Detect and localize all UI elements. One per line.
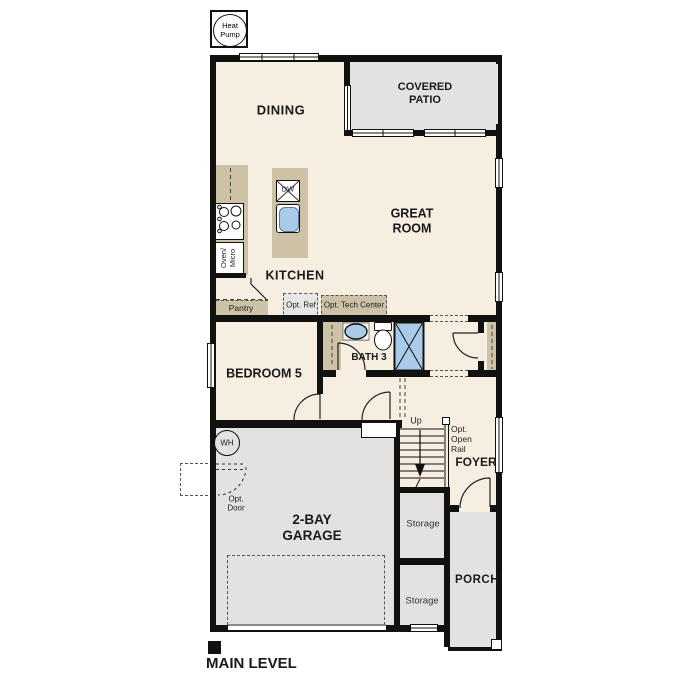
bath-door-opening [336,370,366,377]
window [352,129,414,137]
front-door-opening [459,505,490,512]
garage-door-clearance-dashed [227,555,385,625]
porch-step [491,639,502,650]
window [424,129,486,137]
great-room-label: GREAT ROOM [380,206,444,236]
heat-pump-badge: Heat Pump [210,10,248,48]
storage-lower-label: Storage [405,595,438,606]
bath3-label: BATH 3 [351,352,386,364]
storage-vent-window [410,624,438,632]
island-sink-basin [279,207,299,232]
garage-entry-step [361,422,397,438]
dining-label: DINING [257,102,306,117]
floorplan-canvas: Heat Pump DINING COVERED PATIO GREAT ROO… [0,0,687,687]
dishwasher-label: DW [282,186,295,195]
opt-door-label: Opt. Door [219,495,253,514]
garage-overhead-door [228,624,386,632]
window [495,158,503,188]
up-label: Up [410,416,422,427]
oven-micro-label: Oven/ Micro [220,238,238,278]
wall [317,377,323,394]
main-level-label: MAIN LEVEL [206,655,297,673]
opt-door-landing-dashed [180,463,213,496]
wall [394,487,450,493]
water-heater-label: WH [220,438,233,447]
window [495,272,503,302]
bath-vanity [341,322,369,341]
garage-label: 2-BAY GARAGE [267,512,357,544]
foyer-label: FOYER [455,455,496,469]
window [239,53,319,61]
opt-open-rail-label: Opt. Open Rail [451,424,487,454]
wall [317,315,323,377]
opt-ref-label: Opt. Ref [285,300,317,309]
opt-opening-upper [430,315,468,322]
covered-patio-label: COVERED PATIO [385,81,465,107]
heat-pump-label: Heat Pump [217,22,243,39]
cooktop-box [215,203,244,240]
pantry-label: Pantry [229,303,254,313]
wall [478,361,484,377]
window [207,343,215,388]
wall [396,558,448,565]
wall [478,322,484,333]
window [344,85,351,131]
heat-pump-oval: Heat Pump [213,14,247,47]
kitchen-label: KITCHEN [265,269,324,284]
storage-upper-label: Storage [406,518,439,529]
bedroom5-label: BEDROOM 5 [226,367,302,382]
bedroom-door-opening [317,394,323,420]
patio-thin-wall-patch [494,64,498,124]
opt-tech-center-label: Opt. Tech Center [323,300,385,309]
bath-linen-closet [323,322,341,370]
wall [496,57,502,647]
opt-opening-lower [430,370,468,377]
wall [394,420,400,632]
main-level-marker [208,641,221,654]
porch-label: PORCH [455,574,499,588]
